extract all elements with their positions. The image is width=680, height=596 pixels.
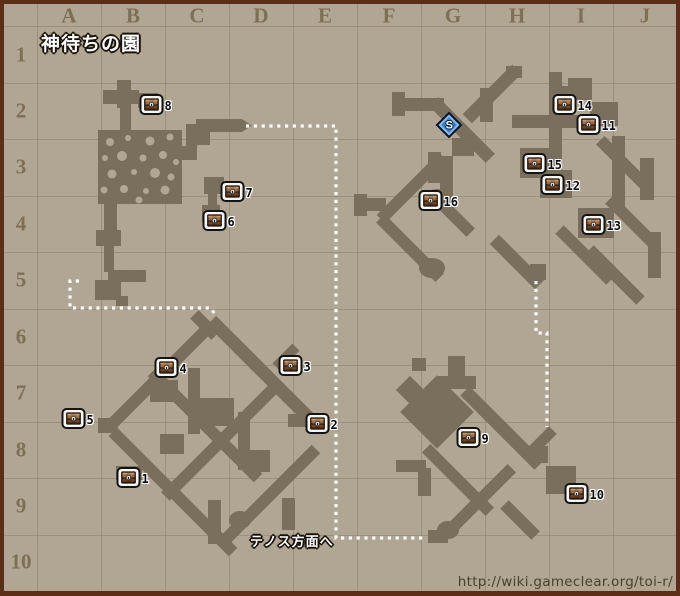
source-url-text: http://wiki.gameclear.org/toi-r/ bbox=[458, 574, 673, 590]
row-header-3: 3 bbox=[16, 155, 27, 180]
chest-number: 8 bbox=[165, 99, 172, 113]
chest-number: 16 bbox=[444, 195, 458, 209]
column-header-j: J bbox=[640, 4, 651, 29]
column-header-a: A bbox=[61, 4, 76, 29]
chest-icon bbox=[523, 153, 547, 174]
column-header-c: C bbox=[189, 4, 204, 29]
row-header-9: 9 bbox=[16, 494, 27, 519]
chest-marker-3: 3 bbox=[279, 355, 302, 375]
chest-icon bbox=[306, 413, 330, 434]
chest-icon bbox=[565, 483, 589, 504]
chest-number: 14 bbox=[578, 99, 592, 113]
chest-icon bbox=[541, 174, 565, 195]
chest-number: 5 bbox=[87, 413, 94, 427]
chest-number: 13 bbox=[607, 219, 621, 233]
column-header-h: H bbox=[509, 4, 525, 29]
chest-number: 15 bbox=[548, 158, 562, 172]
chest-icon bbox=[140, 94, 164, 115]
map-title: 神待ちの園 bbox=[41, 29, 141, 56]
exit-direction-label: テノス方面へ bbox=[250, 531, 334, 550]
chest-marker-16: 16 bbox=[419, 190, 442, 210]
row-header-7: 7 bbox=[16, 381, 27, 406]
map-canvas bbox=[0, 0, 680, 596]
row-header-8: 8 bbox=[16, 438, 27, 463]
row-header-2: 2 bbox=[16, 99, 27, 124]
chest-marker-1: 1 bbox=[117, 467, 140, 487]
chest-number: 7 bbox=[246, 186, 253, 200]
chest-number: 12 bbox=[566, 179, 580, 193]
chest-icon bbox=[279, 355, 303, 376]
chest-icon bbox=[577, 114, 601, 135]
row-header-1: 1 bbox=[16, 43, 27, 68]
chest-marker-2: 2 bbox=[306, 413, 329, 433]
chest-number: 3 bbox=[304, 360, 311, 374]
row-header-5: 5 bbox=[16, 268, 27, 293]
chest-marker-15: 15 bbox=[523, 153, 546, 173]
column-header-i: I bbox=[577, 4, 585, 29]
chest-icon bbox=[203, 210, 227, 231]
chest-marker-6: 6 bbox=[203, 210, 226, 230]
start-point-label: S bbox=[446, 119, 453, 131]
chest-marker-9: 9 bbox=[457, 427, 480, 447]
chest-marker-7: 7 bbox=[221, 181, 244, 201]
column-header-e: E bbox=[318, 4, 332, 29]
row-header-6: 6 bbox=[16, 325, 27, 350]
chest-number: 11 bbox=[602, 119, 616, 133]
chest-icon bbox=[457, 427, 481, 448]
column-header-f: F bbox=[383, 4, 396, 29]
chest-marker-13: 13 bbox=[582, 214, 605, 234]
chest-icon bbox=[419, 190, 443, 211]
chest-icon bbox=[155, 357, 179, 378]
chest-marker-11: 11 bbox=[577, 114, 600, 134]
chest-number: 10 bbox=[590, 488, 604, 502]
game-map: 神待ちの園 ABCDEFGHIJ12345678910 123456789101… bbox=[0, 0, 680, 596]
chest-number: 9 bbox=[482, 432, 489, 446]
chest-marker-4: 4 bbox=[155, 357, 178, 377]
row-header-4: 4 bbox=[16, 212, 27, 237]
chest-number: 6 bbox=[228, 215, 235, 229]
chest-icon bbox=[117, 467, 141, 488]
chest-marker-5: 5 bbox=[62, 408, 85, 428]
chest-number: 2 bbox=[331, 418, 338, 432]
chest-marker-8: 8 bbox=[140, 94, 163, 114]
chest-icon bbox=[582, 214, 606, 235]
chest-number: 4 bbox=[180, 362, 187, 376]
chest-icon bbox=[62, 408, 86, 429]
chest-icon bbox=[553, 94, 577, 115]
column-header-d: D bbox=[253, 4, 268, 29]
column-header-b: B bbox=[126, 4, 140, 29]
chest-icon bbox=[221, 181, 245, 202]
chest-marker-12: 12 bbox=[541, 174, 564, 194]
column-header-g: G bbox=[445, 4, 461, 29]
chest-marker-14: 14 bbox=[553, 94, 576, 114]
row-header-10: 10 bbox=[11, 550, 32, 575]
chest-number: 1 bbox=[142, 472, 149, 486]
chest-marker-10: 10 bbox=[565, 483, 588, 503]
